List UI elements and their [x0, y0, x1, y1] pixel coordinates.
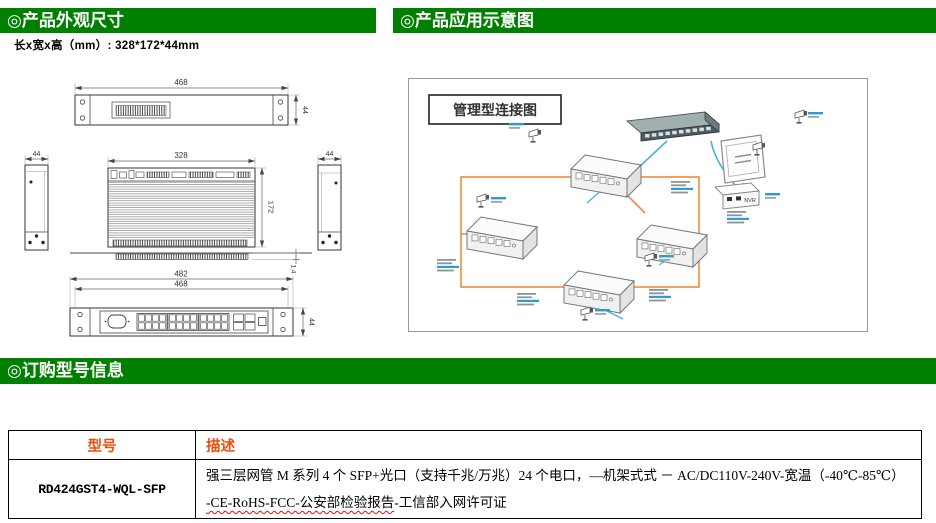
- application-diagram: 管理型连接图: [408, 78, 868, 332]
- side-left-dim: 44: [33, 151, 41, 158]
- front-outer-dim: 482: [174, 270, 188, 279]
- top-view: 328 172 1.4: [70, 151, 312, 274]
- camera-icon: [795, 110, 807, 124]
- model-cell: RD424GST4-WQL-SFP: [9, 460, 196, 519]
- application-diagram-svg: 管理型连接图: [409, 79, 867, 331]
- model-column-header: 型号: [9, 431, 196, 460]
- camera-label: [491, 197, 506, 203]
- device-label: [671, 181, 693, 193]
- camera-icon: [581, 307, 593, 321]
- top-width-dim: 328: [174, 151, 188, 160]
- description-line-2-rest: -工信部入网许可证: [394, 495, 507, 510]
- description-line-2: -CE-RoHS-FCC-公安部检验报告-工信部入网许可证: [206, 489, 913, 516]
- vent-grille: [116, 106, 166, 116]
- front-height-dim: 44: [308, 318, 315, 326]
- description-line-1: 强三层网管 M 系列 4 个 SFP+光口（支持千兆/万兆）24 个电口，—机架…: [206, 462, 913, 489]
- description-column-header: 描述: [196, 431, 922, 460]
- rear-view: 468 44: [75, 78, 308, 125]
- side-view-left: 44: [25, 151, 48, 250]
- device-label: [649, 289, 671, 301]
- device-label: [437, 259, 459, 271]
- dimension-drawings: 468 44 44: [0, 64, 400, 360]
- fiber-switch-central: [571, 155, 641, 197]
- panel-thickness-dim: 1.4: [290, 264, 297, 273]
- fiber-switch-left: [467, 217, 537, 259]
- order-table-row: RD424GST4-WQL-SFP 强三层网管 M 系列 4 个 SFP+光口（…: [9, 460, 922, 519]
- size-note: 长x宽x高（mm）: 328*172*44mm: [14, 37, 199, 53]
- rear-height-dim: 44: [301, 106, 308, 114]
- description-line-2-underlined: -CE-RoHS-FCC-公安部检验报告: [206, 495, 394, 510]
- order-table-header-row: 型号 描述: [9, 431, 922, 460]
- section-header-ordering: ◎订购型号信息: [0, 358, 936, 384]
- front-view: 482 468: [70, 270, 315, 337]
- camera-icon: [529, 129, 541, 143]
- device-label: [727, 211, 749, 223]
- side-right-dim: 44: [326, 151, 334, 158]
- top-depth-dim: 172: [267, 201, 276, 214]
- front-inner-dim: 468: [174, 280, 188, 289]
- datasheet-page: ◎产品外观尺寸 ◎产品应用示意图 长x宽x高（mm）: 328*172*44mm…: [0, 0, 936, 523]
- section-header-appearance: ◎产品外观尺寸: [0, 8, 376, 33]
- description-cell: 强三层网管 M 系列 4 个 SFP+光口（支持千兆/万兆）24 个电口，—机架…: [196, 460, 922, 519]
- section-header-application: ◎产品应用示意图: [393, 8, 936, 33]
- nvr-label: NVR: [744, 198, 756, 204]
- rear-width-dim: 468: [174, 78, 188, 87]
- side-view-right: 44: [318, 151, 341, 250]
- device-label: [517, 293, 539, 305]
- camera-label: [509, 123, 524, 129]
- nvr: NVR: [715, 183, 780, 209]
- order-table: 型号 描述 RD424GST4-WQL-SFP 强三层网管 M 系列 4 个 S…: [8, 430, 922, 519]
- fiber-switch-bottom: [564, 271, 634, 313]
- core-switch: [627, 112, 719, 141]
- diagram-title: 管理型连接图: [453, 102, 537, 118]
- camera-icon: [477, 194, 489, 208]
- heatsink-hatch: [108, 182, 255, 239]
- camera-label: [808, 112, 823, 118]
